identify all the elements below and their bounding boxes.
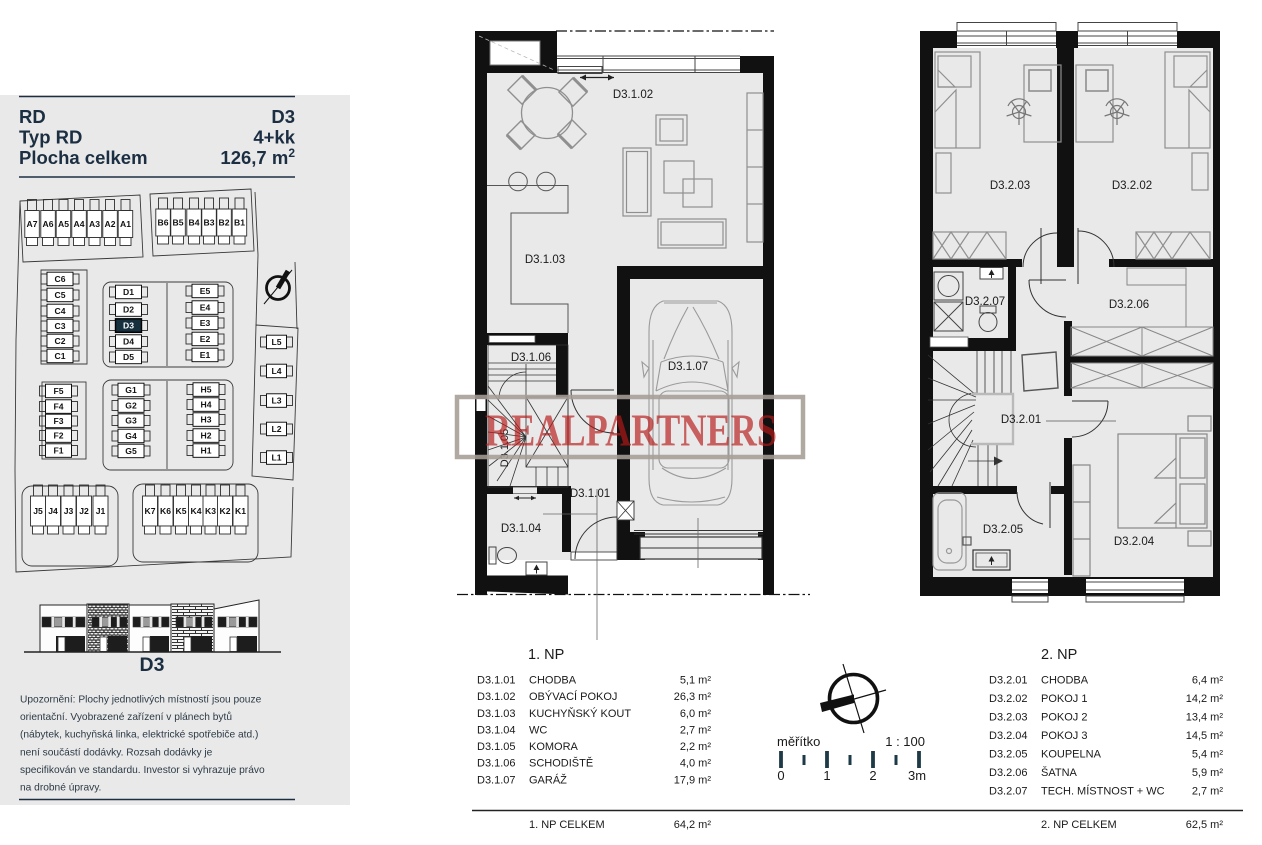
- svg-text:D3.1.06: D3.1.06: [511, 352, 551, 364]
- svg-text:E3: E3: [200, 318, 211, 328]
- svg-text:D3.2.02: D3.2.02: [1112, 180, 1152, 192]
- svg-text:B4: B4: [189, 218, 200, 228]
- svg-text:G5: G5: [125, 446, 137, 456]
- svg-text:1. NP: 1. NP: [528, 647, 564, 663]
- svg-text:není součástí dodávky. Rozsah: není součástí dodávky. Rozsah dodávky je: [20, 747, 213, 758]
- svg-text:17,9 m²: 17,9 m²: [674, 774, 712, 786]
- svg-text:D3.2.05: D3.2.05: [989, 749, 1028, 761]
- svg-text:K7: K7: [145, 506, 156, 516]
- svg-text:G1: G1: [125, 385, 137, 395]
- svg-text:J4: J4: [48, 506, 58, 516]
- svg-text:D3.2.03: D3.2.03: [990, 180, 1030, 192]
- svg-text:RD: RD: [19, 106, 46, 127]
- svg-text:D3.1.01: D3.1.01: [477, 675, 516, 687]
- svg-text:KOMORA: KOMORA: [529, 741, 579, 753]
- svg-text:D3.1.07: D3.1.07: [477, 774, 516, 786]
- svg-text:D1: D1: [123, 287, 134, 297]
- svg-text:na drobné úpravy.: na drobné úpravy.: [20, 783, 101, 794]
- svg-text:D3.2.06: D3.2.06: [989, 767, 1028, 779]
- svg-text:H4: H4: [201, 400, 212, 410]
- svg-text:D3.1.02: D3.1.02: [613, 89, 653, 101]
- svg-text:ŠATNA: ŠATNA: [1041, 766, 1078, 779]
- svg-text:14,2 m²: 14,2 m²: [1186, 693, 1224, 705]
- svg-text:D3.2.05: D3.2.05: [983, 524, 1023, 536]
- svg-text:F1: F1: [53, 446, 63, 456]
- svg-text:5,4 m²: 5,4 m²: [1192, 749, 1224, 761]
- svg-text:D3.1.03: D3.1.03: [525, 254, 565, 266]
- svg-text:Plocha celkem: Plocha celkem: [19, 147, 148, 168]
- svg-text:K4: K4: [191, 506, 202, 516]
- svg-text:orientační. Vyobrazené zařízen: orientační. Vyobrazené zařízení v plánec…: [20, 711, 232, 723]
- svg-text:D3.2.01: D3.2.01: [1001, 414, 1041, 426]
- svg-text:OBÝVACÍ POKOJ: OBÝVACÍ POKOJ: [529, 690, 617, 703]
- svg-text:D3.1.04: D3.1.04: [477, 724, 516, 736]
- svg-text:REALPARTNERS: REALPARTNERS: [485, 405, 777, 456]
- svg-text:C5: C5: [55, 290, 66, 300]
- svg-text:B6: B6: [158, 218, 169, 228]
- svg-text:G2: G2: [125, 401, 137, 411]
- svg-text:H3: H3: [201, 415, 212, 425]
- svg-text:E1: E1: [200, 350, 211, 360]
- svg-text:F2: F2: [53, 431, 63, 441]
- svg-text:G4: G4: [125, 431, 137, 441]
- svg-text:K3: K3: [205, 506, 216, 516]
- svg-text:K1: K1: [235, 506, 246, 516]
- svg-text:C4: C4: [55, 306, 66, 316]
- svg-text:4,0 m²: 4,0 m²: [680, 758, 712, 770]
- svg-text:D3.1.01: D3.1.01: [570, 488, 610, 500]
- svg-text:6,4 m²: 6,4 m²: [1192, 675, 1224, 687]
- svg-text:WC: WC: [529, 724, 547, 736]
- svg-text:D3.2.04: D3.2.04: [989, 730, 1028, 742]
- svg-text:C2: C2: [55, 336, 66, 346]
- svg-text:2: 2: [869, 768, 876, 783]
- svg-text:6,0 m²: 6,0 m²: [680, 708, 712, 720]
- svg-text:D3.2.06: D3.2.06: [1109, 299, 1149, 311]
- svg-text:D3.1.06: D3.1.06: [477, 758, 516, 770]
- svg-text:C3: C3: [55, 321, 66, 331]
- svg-text:KOUPELNA: KOUPELNA: [1041, 749, 1102, 761]
- svg-text:CHODBA: CHODBA: [529, 675, 577, 687]
- svg-text:H1: H1: [201, 446, 212, 456]
- svg-text:D3.2.07: D3.2.07: [965, 296, 1005, 308]
- svg-text:K6: K6: [160, 506, 171, 516]
- svg-text:0: 0: [777, 768, 784, 783]
- svg-text:D3.2.03: D3.2.03: [989, 712, 1028, 724]
- svg-text:D3.2.07: D3.2.07: [989, 786, 1028, 798]
- svg-text:K2: K2: [220, 506, 231, 516]
- svg-text:D3: D3: [140, 654, 165, 676]
- svg-text:C6: C6: [55, 274, 66, 284]
- svg-text:A4: A4: [74, 219, 85, 229]
- svg-text:64,2 m²: 64,2 m²: [674, 819, 712, 831]
- svg-text:A1: A1: [120, 219, 131, 229]
- svg-text:1 : 100: 1 : 100: [885, 734, 925, 749]
- svg-text:E2: E2: [200, 334, 211, 344]
- svg-text:A7: A7: [27, 219, 38, 229]
- svg-text:SCHODIŠTĚ: SCHODIŠTĚ: [529, 757, 593, 770]
- svg-text:126,7 m2: 126,7 m2: [220, 146, 295, 168]
- svg-text:2,7 m²: 2,7 m²: [1192, 786, 1224, 798]
- svg-text:D3.1.03: D3.1.03: [477, 708, 516, 720]
- svg-text:D3.2.01: D3.2.01: [989, 675, 1028, 687]
- svg-text:GARÁŽ: GARÁŽ: [529, 773, 567, 786]
- svg-text:H2: H2: [201, 431, 212, 441]
- svg-text:D3.2.04: D3.2.04: [1114, 536, 1155, 548]
- svg-text:F3: F3: [53, 416, 63, 426]
- svg-text:L2: L2: [271, 424, 281, 434]
- svg-text:Upozornění: Plochy jednotlivýc: Upozornění: Plochy jednotlivých místnost…: [20, 695, 262, 706]
- svg-text:A6: A6: [43, 219, 54, 229]
- svg-text:3m: 3m: [908, 768, 926, 783]
- svg-text:F5: F5: [53, 386, 63, 396]
- svg-text:2. NP CELKEM: 2. NP CELKEM: [1041, 819, 1117, 831]
- svg-text:POKOJ 2: POKOJ 2: [1041, 712, 1087, 724]
- svg-text:62,5 m²: 62,5 m²: [1186, 819, 1224, 831]
- svg-text:D3.2.02: D3.2.02: [989, 693, 1028, 705]
- svg-text:Typ RD: Typ RD: [19, 127, 82, 148]
- svg-text:F4: F4: [53, 402, 63, 412]
- svg-text:D2: D2: [123, 305, 134, 315]
- svg-text:E4: E4: [200, 303, 211, 313]
- svg-text:A3: A3: [89, 219, 100, 229]
- svg-text:5,9 m²: 5,9 m²: [1192, 767, 1224, 779]
- svg-text:L4: L4: [271, 366, 281, 376]
- svg-text:L5: L5: [271, 337, 281, 347]
- svg-text:C1: C1: [55, 351, 66, 361]
- svg-text:B1: B1: [234, 218, 245, 228]
- svg-text:TECH. MÍSTNOST + WC: TECH. MÍSTNOST + WC: [1041, 785, 1165, 798]
- svg-text:14,5 m²: 14,5 m²: [1186, 730, 1224, 742]
- svg-text:(nábytek, kuchyňská linka, ele: (nábytek, kuchyňská linka, elektrické sp…: [20, 730, 258, 741]
- svg-text:J3: J3: [64, 506, 74, 516]
- svg-text:D3.1.07: D3.1.07: [668, 361, 708, 373]
- svg-text:26,3 m²: 26,3 m²: [674, 691, 712, 703]
- svg-text:2,7 m²: 2,7 m²: [680, 724, 712, 736]
- svg-text:13,4 m²: 13,4 m²: [1186, 712, 1224, 724]
- svg-text:L3: L3: [271, 396, 281, 406]
- svg-text:D3.1.05: D3.1.05: [477, 741, 516, 753]
- svg-text:5,1 m²: 5,1 m²: [680, 675, 712, 687]
- svg-text:D4: D4: [123, 337, 134, 347]
- svg-text:1: 1: [823, 768, 830, 783]
- svg-text:H5: H5: [201, 385, 212, 395]
- svg-text:K5: K5: [176, 506, 187, 516]
- svg-text:KUCHYŇSKÝ KOUT: KUCHYŇSKÝ KOUT: [529, 707, 631, 720]
- svg-text:J1: J1: [96, 506, 106, 516]
- svg-text:J2: J2: [79, 506, 89, 516]
- svg-text:D3.1.04: D3.1.04: [501, 523, 542, 535]
- svg-text:měřítko: měřítko: [777, 734, 820, 749]
- svg-text:POKOJ 1: POKOJ 1: [1041, 693, 1087, 705]
- svg-text:B3: B3: [204, 218, 215, 228]
- svg-text:4+kk: 4+kk: [253, 127, 295, 148]
- svg-text:POKOJ 3: POKOJ 3: [1041, 730, 1087, 742]
- svg-text:D3: D3: [271, 106, 295, 127]
- svg-text:B2: B2: [219, 218, 230, 228]
- svg-text:D3.1.02: D3.1.02: [477, 691, 516, 703]
- svg-text:D3: D3: [123, 321, 134, 331]
- svg-text:G3: G3: [125, 416, 137, 426]
- svg-text:E5: E5: [200, 286, 211, 296]
- svg-text:2,2 m²: 2,2 m²: [680, 741, 712, 753]
- svg-text:1. NP CELKEM: 1. NP CELKEM: [529, 819, 605, 831]
- svg-text:B5: B5: [173, 218, 184, 228]
- svg-text:CHODBA: CHODBA: [1041, 675, 1089, 687]
- svg-text:L1: L1: [271, 453, 281, 463]
- svg-text:A2: A2: [105, 219, 116, 229]
- svg-text:J5: J5: [33, 506, 43, 516]
- svg-text:2. NP: 2. NP: [1041, 647, 1077, 663]
- svg-text:D5: D5: [123, 352, 134, 362]
- svg-text:A5: A5: [58, 219, 69, 229]
- svg-text:specifikován ve standardu. Inv: specifikován ve standardu. Investor si v…: [20, 765, 265, 776]
